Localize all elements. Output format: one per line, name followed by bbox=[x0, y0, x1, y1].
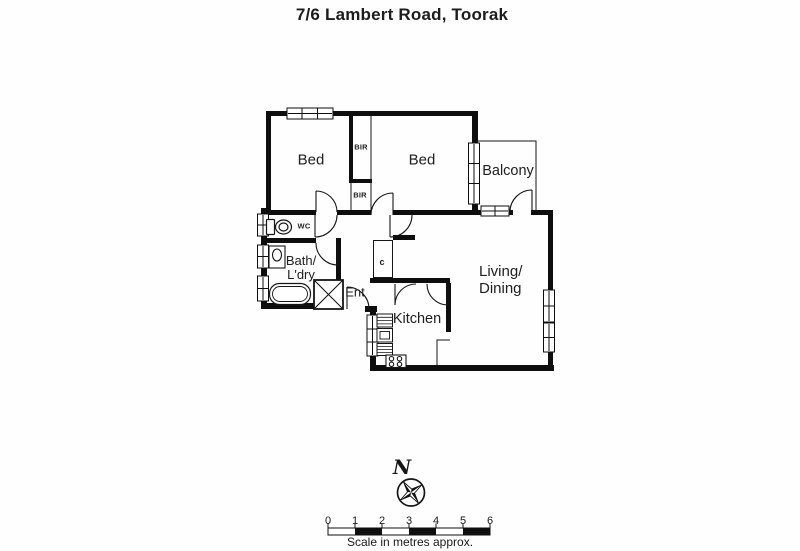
kitchen-counter-line bbox=[437, 340, 450, 365]
label-living-line2: Dining bbox=[479, 280, 522, 297]
door-bed2 bbox=[371, 193, 393, 215]
label-bir-bottom: BIR bbox=[353, 191, 367, 200]
bathtub-fixture bbox=[270, 284, 311, 305]
label-kitchen: Kitchen bbox=[393, 311, 441, 327]
window-bed2-right bbox=[469, 143, 480, 204]
label-wc: WC bbox=[298, 222, 311, 231]
stove-fixture bbox=[386, 355, 406, 368]
label-bed2: Bed bbox=[409, 152, 436, 169]
label-bath-line1: Bath/ bbox=[286, 254, 316, 268]
wall-wc-bottom bbox=[261, 238, 316, 243]
label-living-line1: Living/ bbox=[479, 263, 522, 280]
wall-hall-living bbox=[370, 278, 450, 283]
window-under-balcony bbox=[481, 206, 509, 216]
scale-tick-5: 5 bbox=[460, 515, 466, 527]
label-bir-top: BIR bbox=[354, 143, 368, 152]
label-bath-laundry: Bath/ L'dry bbox=[286, 254, 316, 282]
toilet-fixture bbox=[267, 220, 292, 235]
walls bbox=[261, 111, 554, 371]
wall-bed2-right-lower bbox=[472, 203, 478, 215]
compass-star-shading bbox=[400, 482, 421, 503]
scale-tick-4: 4 bbox=[433, 515, 439, 527]
label-entry: Ent bbox=[345, 285, 365, 300]
scale-tick-3: 3 bbox=[406, 515, 412, 527]
laundry-cupboard-box bbox=[314, 280, 343, 309]
label-cupboard: c bbox=[379, 257, 384, 267]
window-bath-left-upper bbox=[258, 245, 269, 268]
label-bed1: Bed bbox=[298, 152, 325, 169]
window-bed1-top bbox=[287, 108, 333, 119]
window-living-right-upper bbox=[544, 290, 555, 322]
scale-tick-2: 2 bbox=[379, 515, 385, 527]
door-kitchen-right bbox=[427, 284, 448, 305]
wall-bir-left bbox=[349, 116, 353, 181]
scale-tick-6: 6 bbox=[487, 515, 493, 527]
sink-fixture bbox=[269, 246, 285, 268]
door-balcony bbox=[510, 190, 532, 212]
label-balcony: Balcony bbox=[482, 163, 534, 179]
kitchen-bench-units bbox=[377, 314, 393, 356]
scale-tick-1: 1 bbox=[352, 515, 358, 527]
scale-tick-0: 0 bbox=[325, 515, 331, 527]
wall-mid-b bbox=[337, 210, 371, 215]
door-wc-lobby bbox=[315, 215, 337, 237]
scale-caption: Scale in metres approx. bbox=[347, 535, 473, 549]
scale-bar-segment-3-4 bbox=[409, 528, 436, 535]
door-bath bbox=[316, 243, 338, 265]
floorplan-page: 7/6 Lambert Road, Toorak bbox=[0, 0, 800, 551]
wall-bed2-right-upper bbox=[472, 111, 478, 145]
window-kitchen-left bbox=[367, 315, 378, 356]
wall-bir-divider bbox=[349, 179, 372, 183]
compass-rose bbox=[398, 479, 425, 506]
window-bath-left-lower bbox=[258, 276, 269, 301]
compass-north-label: N bbox=[393, 455, 411, 479]
label-living-dining: Living/ Dining bbox=[479, 263, 522, 297]
wall-bed1-left bbox=[266, 111, 271, 212]
door-bed1 bbox=[316, 191, 337, 212]
label-bath-line2: L'dry bbox=[286, 268, 316, 282]
scale-bar-segment-5-6 bbox=[463, 528, 490, 535]
door-living bbox=[390, 215, 412, 237]
door-kitchen-left bbox=[395, 284, 416, 305]
thin-lines bbox=[351, 116, 536, 365]
wall-mid-a bbox=[261, 210, 316, 215]
scale-bar-segment-1-2 bbox=[355, 528, 382, 535]
window-living-right-lower bbox=[544, 323, 555, 352]
